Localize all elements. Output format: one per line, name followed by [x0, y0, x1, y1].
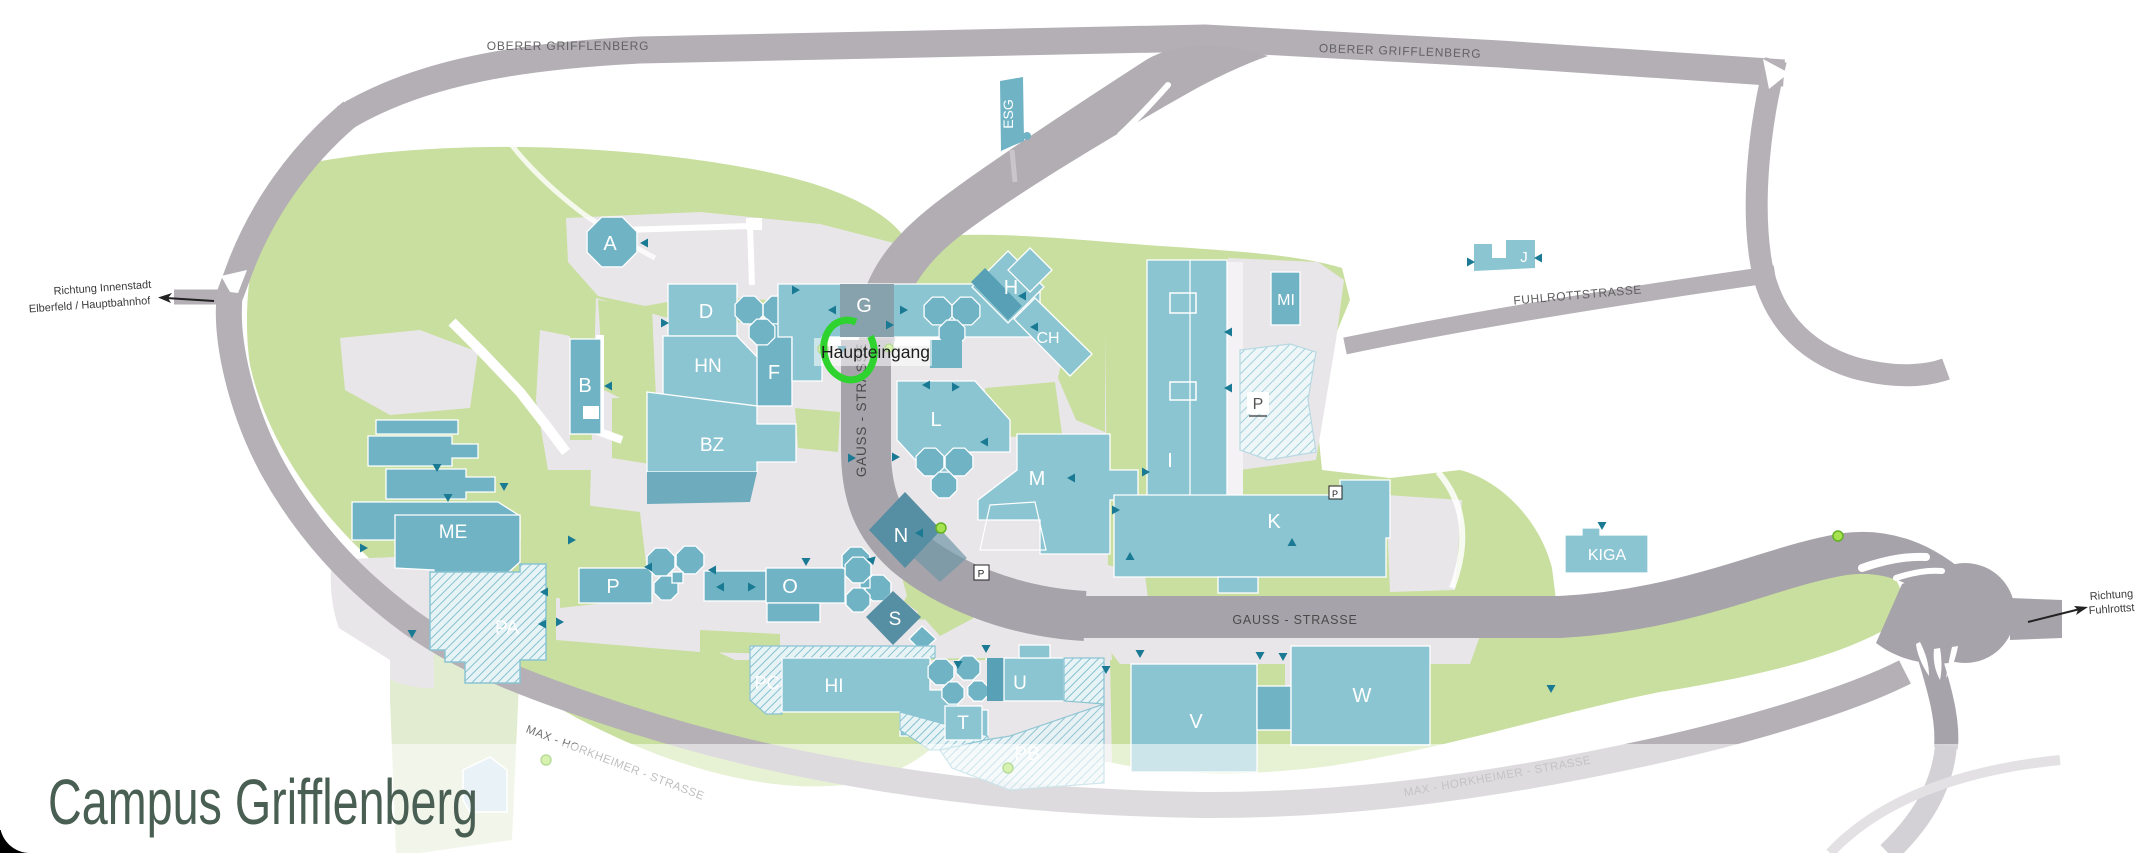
svg-text:U: U	[1013, 673, 1027, 694]
svg-text:M: M	[1029, 468, 1046, 490]
svg-text:GAUSS - STRASSE: GAUSS - STRASSE	[1232, 613, 1357, 627]
svg-text:O: O	[782, 576, 798, 598]
svg-text:J: J	[1520, 249, 1528, 266]
svg-text:P: P	[1332, 489, 1338, 499]
svg-text:L: L	[930, 409, 941, 431]
svg-text:H: H	[1004, 277, 1018, 299]
svg-text:OBERER GRIFFLENBERG: OBERER GRIFFLENBERG	[487, 39, 650, 53]
svg-text:T: T	[957, 713, 969, 734]
svg-text:CH: CH	[1036, 330, 1059, 347]
svg-text:G: G	[856, 295, 872, 317]
svg-text:BZ: BZ	[700, 435, 725, 456]
svg-text:KIGA: KIGA	[1588, 547, 1627, 564]
svg-text:V: V	[1189, 711, 1203, 733]
svg-text:W: W	[1353, 685, 1372, 707]
svg-text:Haupteingang: Haupteingang	[821, 342, 930, 362]
svg-text:Campus Grifflenberg: Campus Grifflenberg	[48, 766, 478, 838]
svg-text:B: B	[578, 375, 591, 397]
svg-text:I: I	[1167, 450, 1173, 472]
svg-text:S: S	[889, 609, 902, 630]
svg-text:D: D	[699, 301, 713, 323]
svg-text:A: A	[603, 233, 617, 255]
svg-text:P: P	[978, 569, 985, 580]
svg-text:ME: ME	[439, 522, 468, 543]
svg-text:F: F	[768, 362, 780, 384]
svg-text:ESG: ESG	[1000, 99, 1016, 129]
svg-text:P: P	[1253, 396, 1264, 413]
svg-text:PC: PC	[754, 673, 779, 693]
svg-text:HI: HI	[825, 676, 844, 697]
svg-text:HN: HN	[694, 356, 721, 377]
svg-text:MI: MI	[1277, 292, 1295, 309]
svg-text:P: P	[606, 576, 619, 598]
svg-text:PA: PA	[495, 618, 519, 639]
svg-text:N: N	[894, 525, 908, 547]
svg-text:K: K	[1267, 511, 1281, 533]
